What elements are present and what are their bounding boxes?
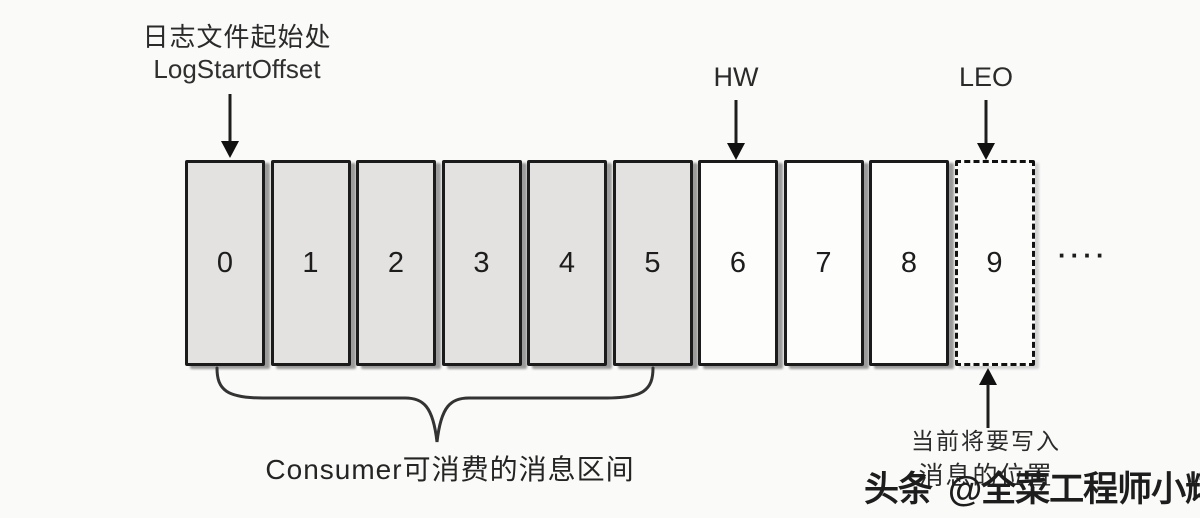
- consumer-range-brace: [205, 366, 665, 448]
- consumer-range-label: Consumer可消费的消息区间: [250, 448, 650, 488]
- offset-label: 9: [986, 247, 1002, 280]
- arrow-head: [979, 368, 997, 385]
- log-start-offset-label-zh: 日志文件起始处: [127, 22, 347, 54]
- log-start-offset-label-en: LogStartOffset: [127, 54, 347, 86]
- arrow-shaft: [987, 384, 990, 428]
- log-start-offset-label: 日志文件起始处 LogStartOffset: [127, 22, 347, 85]
- offset-label: 3: [473, 247, 489, 280]
- kafka-log-offset-diagram: 日志文件起始处 LogStartOffset HW LEO 0 1 2 3 4 …: [0, 0, 1200, 518]
- watermark-handle: @全菜工程师小辉: [948, 470, 1200, 509]
- log-cell-9-next-write: 9: [955, 160, 1035, 366]
- leo-label: LEO: [950, 62, 1022, 93]
- arrow-head: [977, 143, 995, 160]
- hw-label: HW: [700, 62, 772, 93]
- log-cell-3: 3: [442, 160, 522, 366]
- log-cell-0: 0: [185, 160, 265, 366]
- hw-arrow-icon: [727, 100, 745, 160]
- offset-label: 7: [815, 247, 831, 280]
- log-cell-7: 7: [784, 160, 864, 366]
- arrow-shaft: [735, 100, 738, 144]
- log-cell-8: 8: [869, 160, 949, 366]
- log-cell-2: 2: [356, 160, 436, 366]
- log-cell-1: 1: [271, 160, 351, 366]
- log-cell-5: 5: [613, 160, 693, 366]
- arrow-shaft: [985, 100, 988, 144]
- offset-label: 6: [730, 247, 746, 280]
- write-position-arrow-icon: [979, 368, 997, 428]
- leo-arrow-icon: [977, 100, 995, 160]
- write-position-line1: 当前将要写入: [880, 428, 1092, 456]
- log-start-offset-arrow-icon: [221, 94, 239, 158]
- log-segment-row: 0 1 2 3 4 5 6 7 8 9: [185, 160, 1035, 366]
- offset-label: 0: [217, 247, 233, 280]
- offset-label: 8: [901, 247, 917, 280]
- offset-label: 1: [302, 247, 318, 280]
- ellipsis-dots: ····: [1058, 240, 1109, 271]
- arrow-shaft: [229, 94, 232, 142]
- watermark: 头条@全菜工程师小辉: [864, 461, 1200, 512]
- log-cell-6: 6: [698, 160, 778, 366]
- log-cell-4: 4: [527, 160, 607, 366]
- arrow-head: [221, 141, 239, 158]
- offset-label: 2: [388, 247, 404, 280]
- arrow-head: [727, 143, 745, 160]
- watermark-prefix: 头条: [864, 470, 932, 509]
- offset-label: 4: [559, 247, 575, 280]
- offset-label: 5: [644, 247, 660, 280]
